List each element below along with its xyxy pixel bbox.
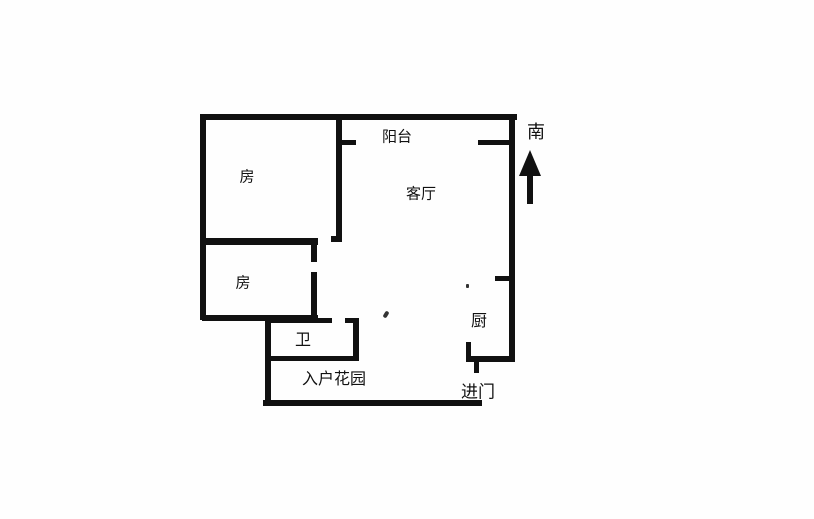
room2-label: 房 [235,276,250,291]
bathroom-label: 卫 [295,333,311,349]
entrance-garden-label: 入户花园 [302,372,366,388]
wall-divider-foot [331,236,342,242]
stray-mark [466,284,469,288]
balcony-label: 阳台 [382,130,412,145]
kitchen-door-tick [474,361,479,373]
bathroom-bottom-wall [265,356,359,361]
wall-bottom [263,400,482,406]
balcony-railing-right [478,140,511,145]
wall-room1-living-divider [336,114,342,242]
kitchen-wall-top-tick [495,276,509,281]
stray-mark [382,310,389,318]
kitchen-label: 厨 [471,314,487,330]
room1-label: 房 [239,170,254,185]
room2-right-wall-lower [311,272,317,320]
floor-plan: 房 房 阳台 客厅 南 卫 入户花园 厨 进门 [0,0,814,519]
bathroom-right-wall [353,318,359,361]
entry-door-label: 进门 [461,384,495,401]
room2-right-wall-upper [311,245,317,262]
balcony-railing-left [338,140,356,145]
wall-left [200,114,206,320]
south-label: 南 [527,123,545,141]
north-arrow-icon [514,144,546,208]
wall-top [200,114,517,120]
living-room-label: 客厅 [406,187,436,202]
bathroom-top-wall-left [265,318,332,323]
kitchen-door-stub [466,342,471,356]
wall-between-rooms [202,238,318,245]
